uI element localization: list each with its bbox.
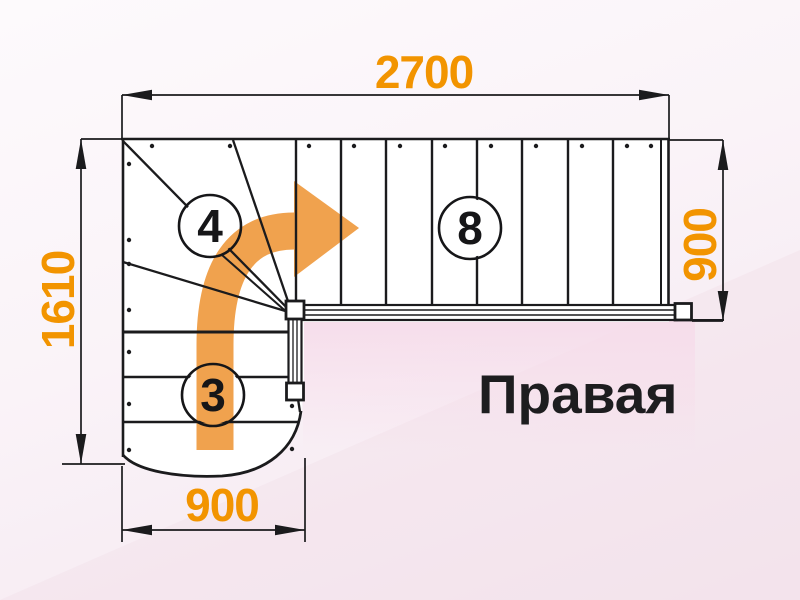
dimension-bottom-label: 900 bbox=[185, 479, 259, 531]
arrowhead-left bbox=[122, 90, 152, 101]
arrowhead-bottom bbox=[76, 434, 87, 464]
arrowhead-left bbox=[122, 525, 152, 536]
arrowhead-top bbox=[718, 140, 729, 170]
upper-flight-count-label: 8 bbox=[457, 202, 483, 254]
dimension-top-label: 2700 bbox=[375, 46, 473, 98]
orientation-label: Правая bbox=[478, 363, 677, 425]
winder-count-label: 4 bbox=[197, 200, 223, 252]
handrail-top bbox=[303, 305, 677, 320]
dimension-left-label: 1610 bbox=[32, 251, 84, 349]
arrowhead-right bbox=[639, 90, 669, 101]
newel-post-right bbox=[675, 304, 692, 321]
newel-post-bottom bbox=[287, 383, 304, 400]
arrowhead-top bbox=[76, 139, 87, 169]
lower-flight-count-label: 3 bbox=[200, 369, 226, 421]
staircase-floor-plan: 4 8 3 2700 1610 900 900 bbox=[0, 0, 800, 600]
dimension-right-label: 900 bbox=[674, 208, 726, 282]
staircase-plan-page: 4 8 3 2700 1610 900 900 bbox=[0, 0, 800, 600]
newel-post-corner bbox=[286, 301, 304, 319]
handrail-left bbox=[289, 319, 302, 385]
